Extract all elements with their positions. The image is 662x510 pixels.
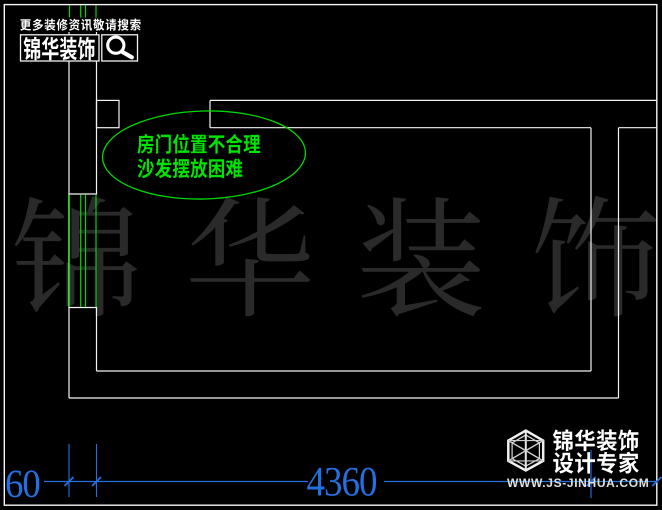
svg-text:WWW.JS-JINHUA.COM: WWW.JS-JINHUA.COM bbox=[507, 476, 649, 490]
